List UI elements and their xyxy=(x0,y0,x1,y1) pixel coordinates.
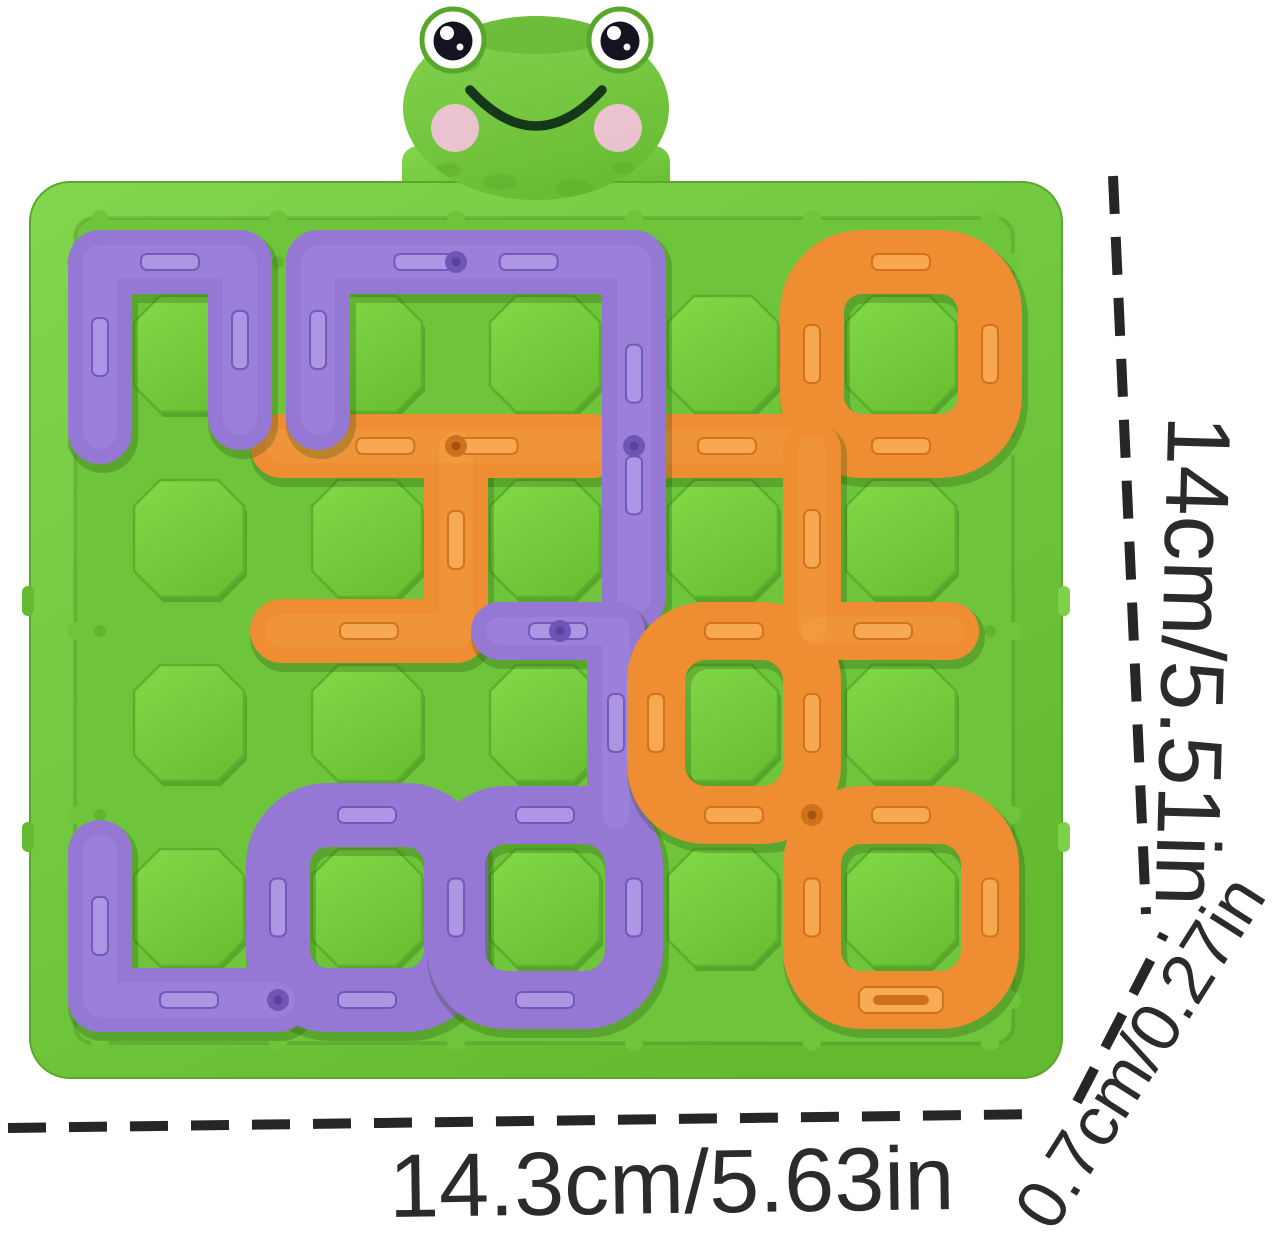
puzzle-board xyxy=(22,146,1070,1078)
board-cell xyxy=(134,849,244,966)
board-cell xyxy=(312,480,422,597)
product-image: 14cm/5.51in 14.3cm/5.63in 0.7cm/0.27in xyxy=(0,0,1273,1252)
board-cell xyxy=(668,296,778,412)
board-cell xyxy=(490,296,600,412)
board-cell xyxy=(846,665,956,781)
width-label: 14.3cm/5.63in xyxy=(388,1129,955,1237)
board-cell xyxy=(490,849,600,966)
frog-left-eye-icon xyxy=(422,9,484,71)
board-cell xyxy=(668,849,778,966)
board-cell xyxy=(134,480,244,597)
board-cell xyxy=(668,480,778,597)
board-cell xyxy=(312,665,422,781)
board-cell xyxy=(846,296,956,412)
frog-head xyxy=(403,6,669,200)
frog-cheek xyxy=(594,104,642,152)
frog-cheek xyxy=(431,104,479,152)
width-dimension-line xyxy=(8,1114,1044,1128)
board-cell xyxy=(134,665,244,781)
board-cell xyxy=(846,849,956,966)
board-cell xyxy=(490,480,600,597)
product-photo: 14cm/5.51in 14.3cm/5.63in 0.7cm/0.27in xyxy=(0,0,1273,1252)
height-label: 14cm/5.51in xyxy=(1136,414,1249,907)
board-cell xyxy=(312,849,422,966)
board-cell xyxy=(490,665,600,781)
board-cell xyxy=(846,480,956,597)
frog-right-eye-icon xyxy=(589,9,651,71)
